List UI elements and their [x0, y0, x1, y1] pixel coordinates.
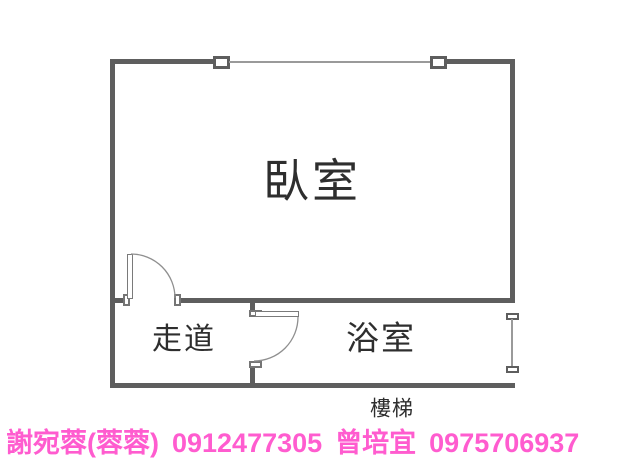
floorplan-image: 臥室 走道 浴室 樓梯 謝宛蓉(蓉蓉) 0912477305 曾培宜 09757…: [0, 0, 640, 461]
contact-agent2-name: 曾培宜: [335, 421, 416, 460]
bathroom-label: 浴室: [346, 322, 416, 355]
bedroom-door-arc: [131, 254, 175, 298]
corridor-label: 走道: [152, 325, 216, 355]
contact-agent1-phone: 0912477305: [172, 428, 322, 459]
door-swing-overlay: [0, 0, 640, 461]
stairs-label: 樓梯: [370, 399, 414, 420]
contact-agent1-name: 謝宛蓉(蓉蓉): [6, 421, 159, 460]
contact-agent2-phone: 0975706937: [429, 428, 579, 459]
bathroom-door-arc: [254, 317, 298, 361]
bedroom-label: 臥室: [263, 158, 361, 204]
contact-line: 謝宛蓉(蓉蓉) 0912477305 曾培宜 0975706937: [6, 421, 640, 460]
